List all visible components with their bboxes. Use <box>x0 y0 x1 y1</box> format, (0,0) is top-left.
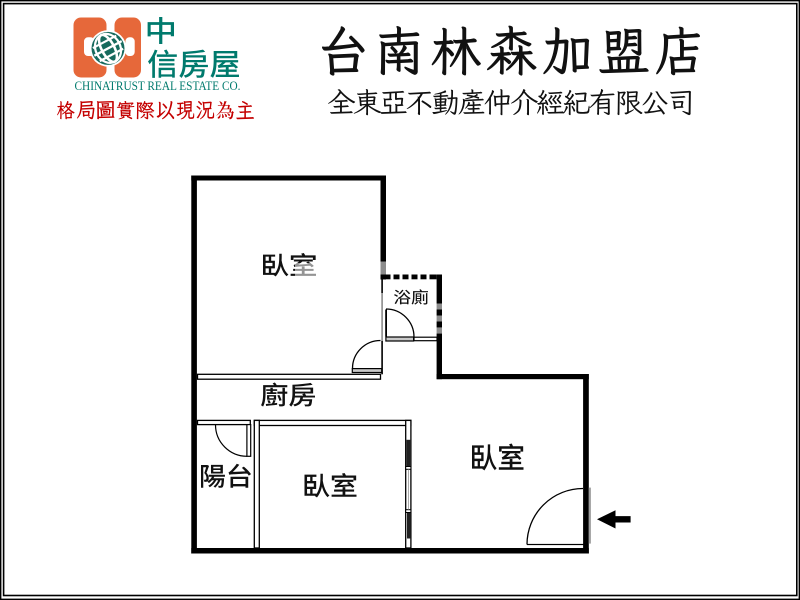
svg-text:CHINATRUST REAL ESTATE CO.: CHINATRUST REAL ESTATE CO. <box>75 79 241 93</box>
